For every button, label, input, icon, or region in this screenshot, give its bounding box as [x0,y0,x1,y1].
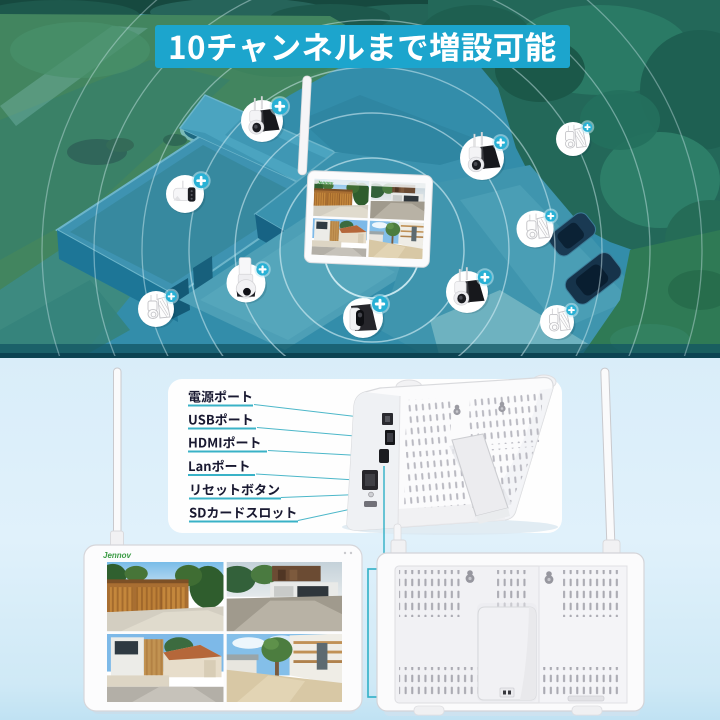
svg-text:Jennov: Jennov [317,180,333,186]
svg-text:Jennov: Jennov [103,551,132,560]
